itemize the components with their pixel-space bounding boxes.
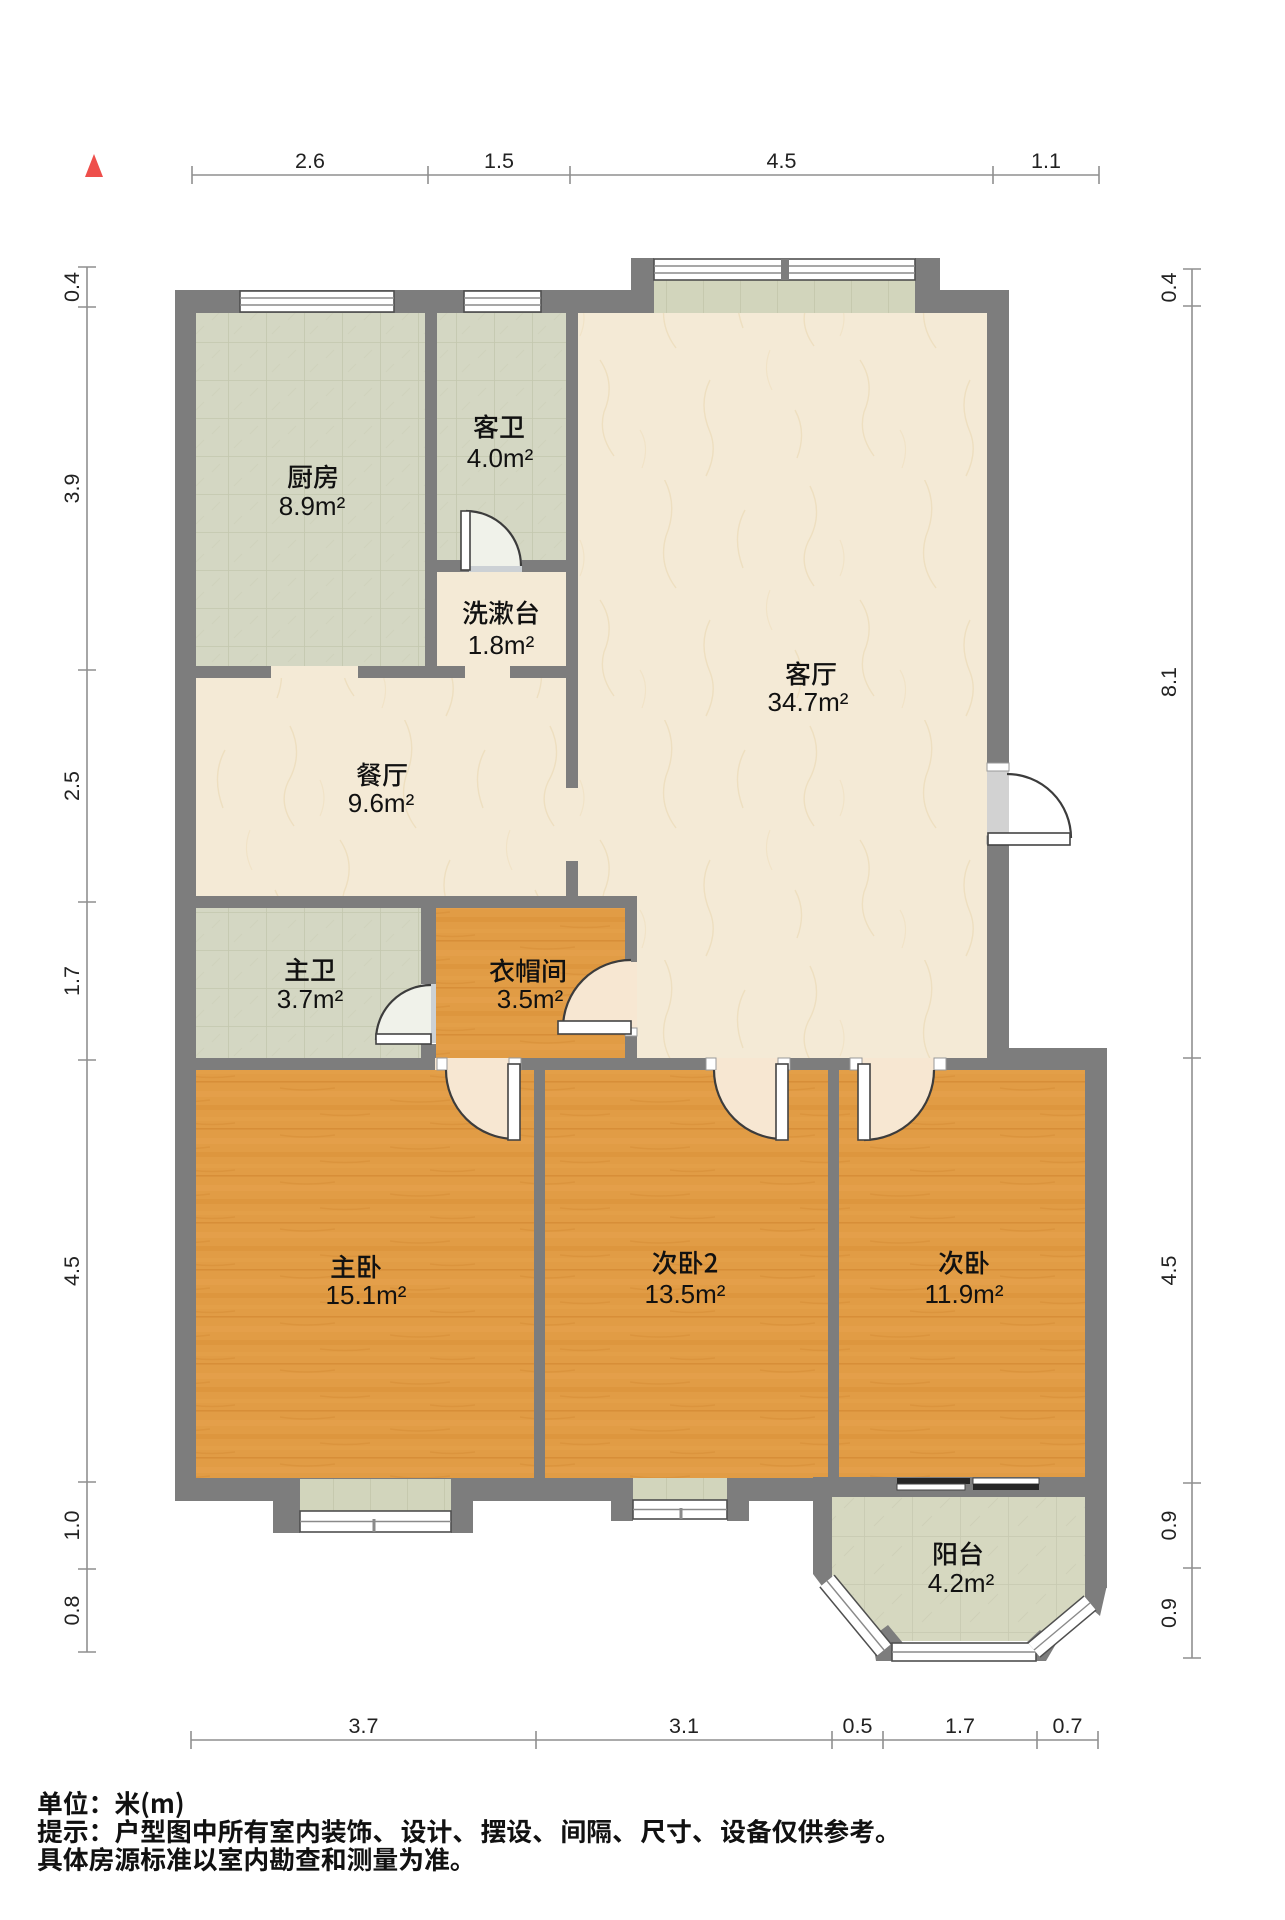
svg-text:1.7: 1.7 [60,966,84,996]
svg-text:0.4: 0.4 [60,272,84,302]
svg-text:0.8: 0.8 [60,1596,84,1626]
svg-text:2.5: 2.5 [60,771,84,801]
svg-text:2.6: 2.6 [295,149,325,173]
svg-text:1.0: 1.0 [60,1511,84,1541]
svg-text:4.5: 4.5 [767,149,797,173]
svg-text:1.7: 1.7 [945,1714,975,1738]
svg-text:0.5: 0.5 [843,1714,873,1738]
svg-text:4.0m²: 4.0m² [467,443,534,473]
svg-text:4.2m²: 4.2m² [928,1568,995,1598]
svg-text:3.7m²: 3.7m² [277,984,344,1014]
svg-text:4.5: 4.5 [1157,1256,1181,1286]
svg-text:3.5m²: 3.5m² [497,984,564,1014]
svg-text:3.7: 3.7 [349,1714,379,1738]
svg-text:15.1m²: 15.1m² [326,1280,407,1310]
svg-text:9.6m²: 9.6m² [348,788,415,818]
svg-text:4.5: 4.5 [60,1256,84,1286]
svg-text:0.4: 0.4 [1157,273,1181,303]
svg-text:34.7m²: 34.7m² [768,687,849,717]
svg-text:3.9: 3.9 [60,474,84,504]
svg-text:8.1: 8.1 [1157,667,1181,697]
svg-text:0.9: 0.9 [1157,1511,1181,1541]
svg-text:0.7: 0.7 [1053,1714,1083,1738]
svg-text:13.5m²: 13.5m² [645,1279,726,1309]
svg-text:0.9: 0.9 [1157,1598,1181,1628]
svg-text:1.5: 1.5 [484,149,514,173]
svg-text:1.1: 1.1 [1031,149,1061,173]
svg-text:11.9m²: 11.9m² [925,1279,1004,1309]
svg-text:3.1: 3.1 [669,1714,699,1738]
svg-text:1.8m²: 1.8m² [468,630,535,660]
svg-text:8.9m²: 8.9m² [279,491,346,521]
